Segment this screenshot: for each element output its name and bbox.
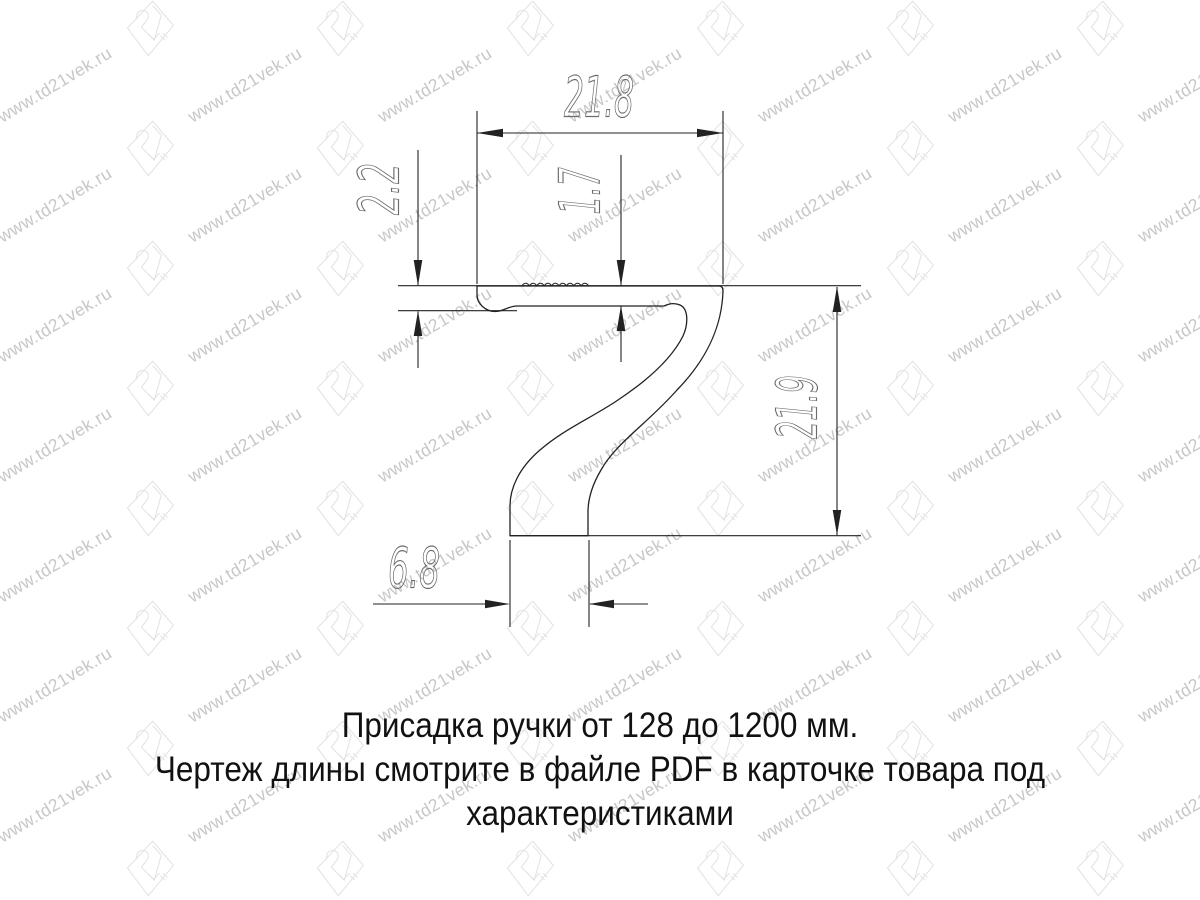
arrow-right-icon (485, 600, 510, 609)
arrow-up-icon (414, 311, 423, 336)
arrow-left-icon (477, 129, 503, 138)
arrow-left-icon (589, 600, 614, 609)
arrow-down-icon (414, 260, 423, 286)
caption-line-2: Чертеж длины смотрите в файле PDF в карт… (60, 748, 1140, 792)
dim-label-right-height: 21.9 (766, 375, 831, 439)
arrow-down-icon (833, 510, 842, 535)
arrow-up-icon (833, 286, 842, 312)
dim-label-top-width: 21.8 (564, 66, 634, 131)
handle-profile-outline (477, 286, 723, 536)
arrow-up-icon (617, 306, 626, 332)
drawing-canvas: www.td21vek.ruwww.td21vek.ruwww.td21vek.… (0, 0, 1200, 900)
arrow-down-icon (617, 260, 626, 286)
caption-line-3: характеристиками (60, 792, 1140, 836)
dimension-arrows (414, 129, 842, 609)
dim-label-lip-height: 2.2 (348, 163, 413, 215)
arrow-right-icon (697, 129, 723, 138)
extension-lines (398, 111, 861, 627)
caption-block: Присадка ручки от 128 до 1200 мм. Чертеж… (60, 704, 1140, 836)
caption-line-1: Присадка ручки от 128 до 1200 мм. (60, 704, 1140, 748)
dim-label-flange-thickness: 1.7 (549, 167, 614, 214)
dim-label-foot-width: 6.8 (388, 537, 440, 602)
